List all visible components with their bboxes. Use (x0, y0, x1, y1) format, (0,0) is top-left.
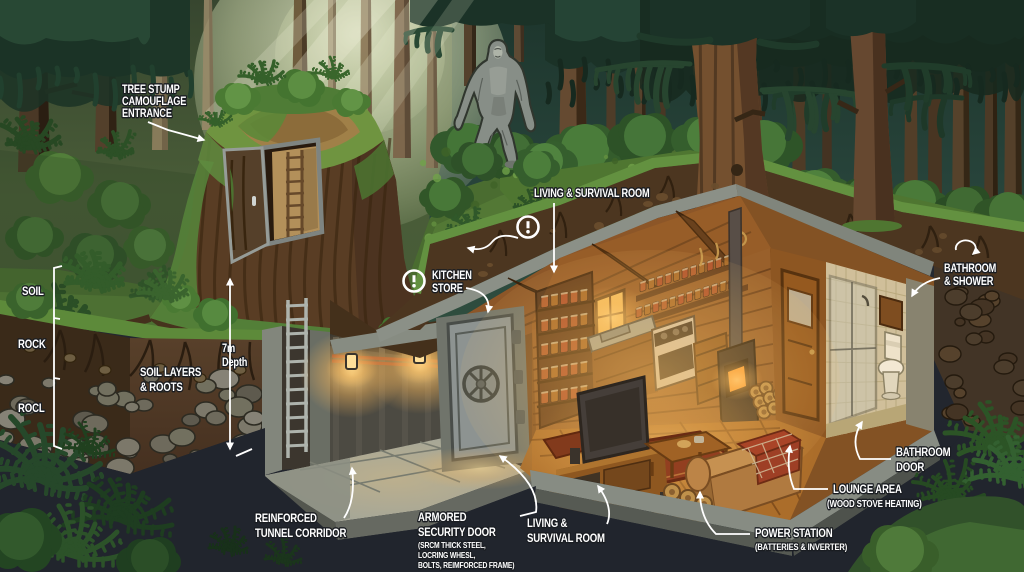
svg-text:LOCRING WHESL,: LOCRING WHESL, (418, 550, 475, 560)
svg-text:STORE: STORE (432, 283, 463, 295)
svg-text:& SHOWER: & SHOWER (944, 276, 994, 288)
svg-text:LIVING &: LIVING & (527, 517, 568, 530)
svg-text:SECURITY DOOR: SECURITY DOOR (418, 526, 496, 539)
svg-text:(BATTERIES & INVERTER): (BATTERIES & INVERTER) (755, 541, 847, 552)
svg-text:(SRCM THICK STEEL,: (SRCM THICK STEEL, (418, 540, 486, 550)
svg-text:BATHROOM: BATHROOM (896, 446, 951, 459)
svg-text:ROCK: ROCK (18, 338, 46, 351)
svg-text:SURVIVAL ROOM: SURVIVAL ROOM (527, 532, 605, 545)
svg-text:REINFORCED: REINFORCED (255, 512, 317, 525)
svg-text:7m: 7m (222, 343, 235, 355)
svg-text:POWER STATION: POWER STATION (755, 527, 833, 540)
svg-text:KITCHEN: KITCHEN (432, 270, 472, 282)
svg-text:BOLTS, REIMFORCED FRAME): BOLTS, REIMFORCED FRAME) (418, 560, 515, 570)
svg-text:SOIL LAYERS: SOIL LAYERS (140, 366, 201, 379)
svg-text:& ROOTS: & ROOTS (140, 381, 183, 394)
svg-text:(WOOD STOVE HEATING): (WOOD STOVE HEATING) (827, 498, 922, 509)
svg-text:CAMOUFLAGE: CAMOUFLAGE (122, 96, 186, 108)
svg-text:ROCL: ROCL (18, 402, 45, 415)
svg-text:LIVING & SURVIVAL ROOM: LIVING & SURVIVAL ROOM (534, 188, 649, 200)
svg-text:LOUNGE AREA: LOUNGE AREA (833, 483, 902, 496)
svg-text:ENTRANCE: ENTRANCE (122, 108, 172, 120)
svg-text:Depth: Depth (222, 357, 247, 369)
svg-text:BATHROOM: BATHROOM (944, 263, 996, 275)
svg-text:DOOR: DOOR (896, 461, 924, 474)
svg-text:TUNNEL CORRIDOR: TUNNEL CORRIDOR (255, 527, 347, 540)
svg-text:TREE STUMP: TREE STUMP (122, 84, 180, 96)
svg-text:SOIL: SOIL (22, 285, 44, 298)
svg-text:ARMORED: ARMORED (418, 511, 467, 524)
